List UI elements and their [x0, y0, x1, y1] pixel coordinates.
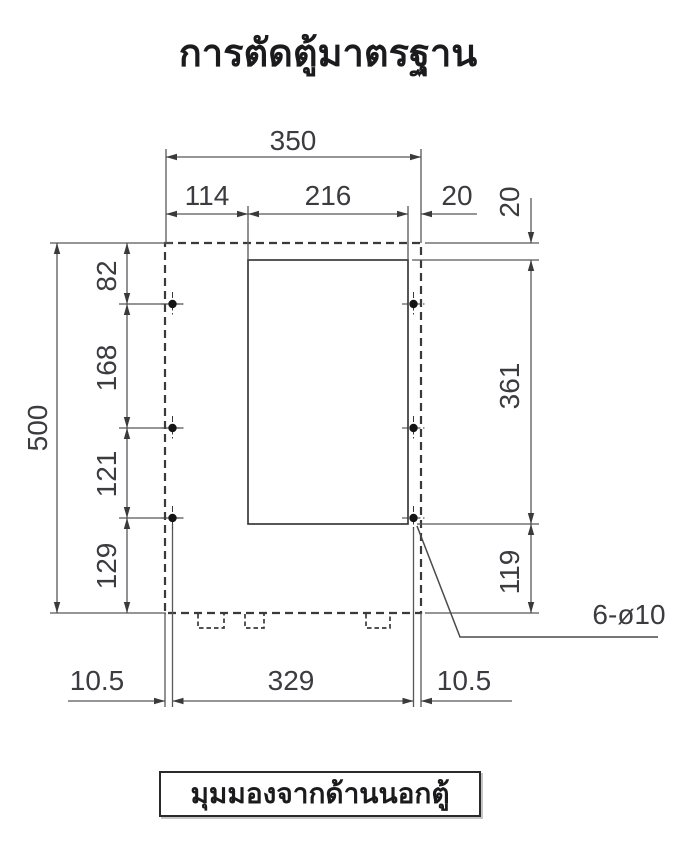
dim-label-bottom-left-margin: 10.5 [70, 665, 125, 696]
dim-label-cutout-right-gap: 20 [441, 180, 472, 211]
dim-label-cutout-left-offset: 114 [185, 180, 230, 211]
dim-label-hole-row3-to-bottom: 129 [91, 543, 122, 590]
hole-circle [409, 514, 417, 522]
dim-label-top-to-hole-row1: 82 [91, 260, 122, 291]
dim-label-hole-span: 329 [268, 665, 315, 696]
dim-label-cutout-bottom-to-edge: 119 [494, 550, 525, 595]
dimension-lines [57, 157, 531, 701]
hole-callout-label: 6-ø10 [592, 599, 665, 630]
caption-text: มุมมองจากด้านนอกตู้ [190, 772, 449, 816]
knockout-tab [245, 614, 264, 628]
dim-label-hole-row2-to-row3: 121 [91, 451, 122, 498]
dim-label-cutout-width: 216 [305, 180, 352, 211]
cutout-panel [248, 260, 408, 524]
extension-lines [50, 149, 539, 707]
caption-box: มุมมองจากด้านนอกตู้ [159, 771, 481, 817]
mounting-hole [402, 506, 426, 530]
dim-label-overall-width: 350 [270, 125, 317, 156]
dim-label-cutout-height: 361 [494, 363, 525, 410]
knockout-tab [366, 614, 390, 628]
hole-circle [409, 300, 417, 308]
dimension-labels: 350 114 216 20 20 500 82 168 121 129 361… [22, 125, 666, 696]
drawing-page: การตัดตู้มาตรฐาน [0, 0, 685, 866]
hole-circle [409, 424, 417, 432]
mounting-hole [402, 292, 426, 316]
dim-label-cutout-top-gap: 20 [494, 186, 525, 217]
cabinet-dashed-outline [165, 243, 421, 613]
dim-label-overall-height: 500 [22, 405, 53, 452]
dim-label-bottom-right-margin: 10.5 [437, 665, 492, 696]
dim-label-hole-row1-to-row2: 168 [91, 345, 122, 392]
knockout-tab [198, 614, 224, 628]
mounting-hole [402, 416, 426, 440]
hole-circle [168, 300, 176, 308]
hole-circle [168, 424, 176, 432]
mounting-holes [161, 292, 426, 530]
hole-circle [168, 514, 176, 522]
cabinet-cutting-diagram: 350 114 216 20 20 500 82 168 121 129 361… [0, 0, 685, 866]
